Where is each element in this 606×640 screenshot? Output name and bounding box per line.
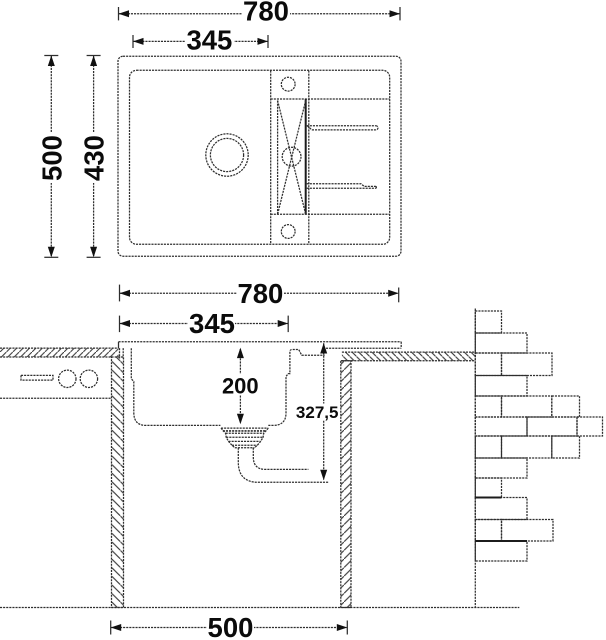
svg-text:500: 500 — [208, 612, 254, 640]
svg-text:200: 200 — [222, 373, 259, 398]
svg-text:430: 430 — [79, 135, 110, 181]
svg-text:345: 345 — [186, 24, 232, 55]
svg-text:500: 500 — [36, 135, 67, 181]
svg-text:345: 345 — [189, 308, 235, 339]
svg-text:780: 780 — [243, 0, 289, 27]
svg-text:780: 780 — [237, 278, 283, 309]
svg-text:327,5: 327,5 — [296, 403, 339, 422]
